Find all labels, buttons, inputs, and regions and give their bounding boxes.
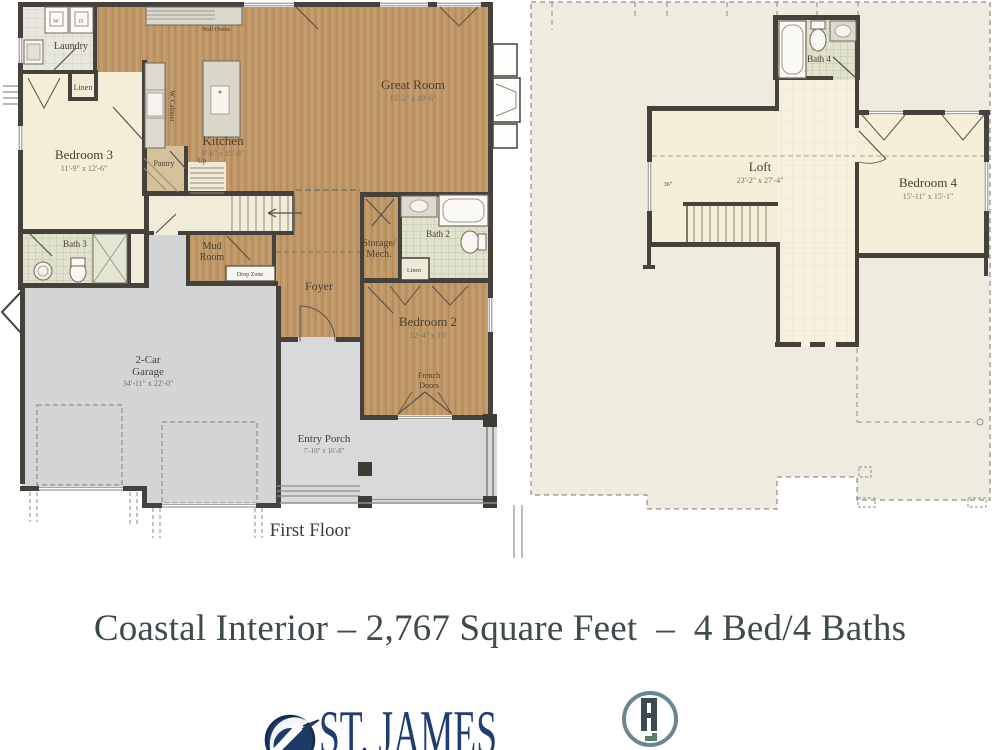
svg-text:23'-2" x 27'-4": 23'-2" x 27'-4"	[737, 176, 784, 185]
svg-text:12'-4" x 13': 12'-4" x 13'	[410, 331, 447, 340]
svg-text:French: French	[418, 371, 440, 380]
svg-text:Bath 3: Bath 3	[63, 239, 87, 249]
svg-text:Garage: Garage	[132, 366, 164, 378]
svg-text:9'-6" x 15'-8": 9'-6" x 15'-8"	[202, 149, 245, 158]
svg-text:Drop Zone: Drop Zone	[237, 272, 263, 278]
svg-text:Bedroom 3: Bedroom 3	[55, 147, 113, 162]
svg-text:Entry Porch: Entry Porch	[298, 433, 351, 445]
svg-text:Foyer: Foyer	[305, 279, 333, 293]
svg-text:15'-11" x 15'-1": 15'-11" x 15'-1"	[903, 192, 953, 201]
svg-text:D: D	[79, 19, 84, 25]
svg-text:Up: Up	[198, 157, 207, 165]
svg-text:W. Cabinet: W. Cabinet	[168, 90, 176, 121]
svg-text:7'-10" x 16'-8": 7'-10" x 16'-8"	[304, 447, 345, 455]
svg-text:Coastal Interior – 2,767 Squar: Coastal Interior – 2,767 Square Feet – 4…	[94, 608, 906, 649]
svg-text:Great Room: Great Room	[381, 77, 445, 92]
svg-text:Loft: Loft	[749, 159, 772, 174]
svg-text:ST. JAMES: ST. JAMES	[319, 697, 497, 750]
svg-text:Mech.: Mech.	[366, 249, 391, 260]
svg-text:Pantry: Pantry	[154, 159, 175, 168]
svg-text:Bedroom 2: Bedroom 2	[399, 314, 457, 329]
svg-text:36": 36"	[664, 182, 673, 188]
svg-text:Storage/: Storage/	[362, 238, 396, 249]
svg-text:Bedroom 4: Bedroom 4	[899, 175, 958, 190]
svg-text:11'-9" x 12'-6": 11'-9" x 12'-6"	[61, 164, 107, 173]
svg-text:2-Car: 2-Car	[135, 354, 160, 366]
svg-text:Bath 4: Bath 4	[807, 54, 831, 64]
svg-text:Doors: Doors	[419, 381, 439, 390]
svg-text:Linen: Linen	[74, 83, 93, 92]
svg-text:Room: Room	[200, 252, 225, 263]
svg-text:First Floor: First Floor	[270, 520, 351, 541]
svg-text:Linen: Linen	[407, 268, 421, 274]
svg-text:Mud: Mud	[203, 241, 222, 252]
svg-text:34'-11" x 22'-0": 34'-11" x 22'-0"	[123, 379, 173, 388]
svg-text:15'-2" x 19'-6": 15'-2" x 19'-6"	[390, 94, 437, 103]
svg-text:W: W	[53, 19, 59, 25]
svg-text:Wall Ovens: Wall Ovens	[202, 27, 231, 33]
svg-text:Laundry: Laundry	[54, 41, 88, 52]
svg-text:Bath 2: Bath 2	[426, 229, 450, 239]
svg-text:Kitchen: Kitchen	[202, 133, 244, 148]
